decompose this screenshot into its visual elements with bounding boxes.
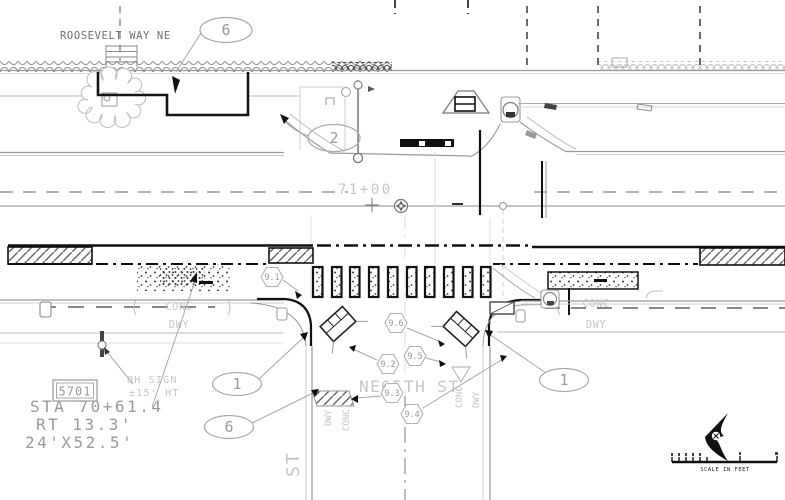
pole-flag-icon bbox=[368, 86, 375, 92]
scale-bar-label: SCALE IN FEET bbox=[700, 467, 750, 473]
north-curb-bus-zone bbox=[330, 153, 470, 156]
ramp-left-conc-label: CONC bbox=[342, 409, 352, 431]
sta-note-line2: RT 13.3' bbox=[36, 415, 133, 434]
keynote-9-2-arrow-icon bbox=[349, 345, 356, 352]
keynote-9-6-label: 9.6 bbox=[388, 319, 403, 329]
conc-label-left: CONC bbox=[165, 301, 192, 313]
hatch-area-3 bbox=[700, 248, 785, 265]
keynote-9-3-label: 9.3 bbox=[384, 389, 399, 399]
curb-ramp-left bbox=[313, 301, 367, 354]
concrete-panel-right bbox=[548, 272, 638, 289]
keynote-9-1-label: 9.1 bbox=[264, 273, 279, 283]
callout-2-label: 2 bbox=[329, 129, 338, 147]
keynote-9-3-leader bbox=[356, 396, 381, 398]
callouts: 6 2 1 6 1 bbox=[172, 18, 589, 439]
keynote-9-1-arrow-icon bbox=[295, 291, 302, 299]
conc-label-right: CONC bbox=[582, 298, 609, 310]
driveway-flare-5 bbox=[493, 268, 535, 298]
utility-box-2 bbox=[277, 308, 287, 320]
keynote-9-4-label: 9.4 bbox=[404, 410, 419, 420]
station-label: 71+00 bbox=[338, 182, 393, 198]
curb-stop-symbol bbox=[544, 103, 557, 110]
south-frontage-left bbox=[0, 300, 284, 357]
centerline-node bbox=[500, 203, 507, 210]
keynote-9-2-leader bbox=[353, 349, 377, 360]
keynote-9-6-leader bbox=[407, 328, 441, 342]
monument-symbol bbox=[395, 200, 408, 213]
callout-6-top-label: 6 bbox=[221, 21, 230, 39]
rotated-street-label: ST bbox=[283, 451, 304, 477]
oh-sign-label-1: OH SIGN bbox=[127, 375, 178, 386]
keynote-9-5-label: 9.5 bbox=[407, 352, 422, 362]
callout-1-right-arrow-icon bbox=[485, 330, 493, 339]
bus-bench bbox=[400, 139, 454, 147]
keynote-9-6-arrow-icon bbox=[438, 340, 445, 347]
apron-edge-4 bbox=[646, 291, 663, 298]
keynote-9-2-label: 9.2 bbox=[380, 360, 395, 370]
tree-symbol bbox=[78, 67, 146, 128]
ramp-landing-right bbox=[490, 302, 514, 314]
curb-ramp-right bbox=[431, 306, 485, 359]
apron-edge-2 bbox=[228, 300, 230, 315]
concrete-panel-left-dense bbox=[160, 268, 205, 286]
callout-1-left-leader bbox=[259, 336, 305, 379]
sta-note-line1: STA 70+61.4 bbox=[30, 397, 163, 416]
cross-street-suffix: TH ST bbox=[404, 377, 460, 396]
driveway-hatch-box bbox=[312, 391, 354, 406]
station-tick bbox=[365, 198, 379, 212]
crosswalk bbox=[313, 267, 491, 297]
utility-box-3 bbox=[516, 310, 525, 322]
plan-sheet: ROOSEVELT WAY NE 71+00 NE 65 TH ST ST CO… bbox=[0, 0, 785, 500]
oh-sign-leader bbox=[108, 353, 133, 384]
driveway-flare-3 bbox=[520, 122, 565, 151]
scale-bar: SCALE IN FEET bbox=[671, 452, 778, 473]
signal-pole-box-2 bbox=[541, 290, 559, 308]
shelter-ramp bbox=[443, 91, 489, 113]
cross-street-prefix: NE bbox=[359, 377, 381, 396]
signal-pole-box bbox=[501, 97, 520, 122]
callout-6-top-arrow-icon bbox=[172, 76, 180, 94]
hatch-area-2 bbox=[269, 248, 313, 263]
callout-6-bottom-label: 6 bbox=[224, 418, 233, 436]
street-label-roosevelt: ROOSEVELT WAY NE bbox=[60, 30, 171, 42]
keynote-9-1-leader bbox=[283, 280, 298, 291]
titleblock: SCALE IN FEET bbox=[671, 413, 778, 473]
dwy-label-left: DWY bbox=[169, 319, 190, 331]
hatch-area-1 bbox=[8, 247, 92, 264]
driveway-tick-1 bbox=[525, 130, 537, 139]
dwy-label-right: DWY bbox=[586, 319, 607, 331]
ramp-right-dwy-label: DWY bbox=[472, 391, 482, 408]
north-arrow-icon bbox=[705, 413, 728, 461]
notes: 5701 OH SIGN ±15' HT STA 70+61.4 RT 13.3… bbox=[25, 272, 197, 452]
sta-note-line3: 24'X52.5' bbox=[25, 433, 134, 452]
driveway-flare-1 bbox=[283, 119, 330, 153]
keynote-9-4-arrow-icon bbox=[500, 355, 507, 362]
curb-return-left-bold bbox=[257, 299, 311, 346]
keynote-9-5-arrow-icon bbox=[439, 360, 446, 367]
keynote-9-5-leader bbox=[426, 358, 441, 362]
panel-bar-left bbox=[199, 281, 213, 284]
plan-drawing: ROOSEVELT WAY NE 71+00 NE 65 TH ST ST CO… bbox=[0, 0, 785, 500]
callout-1-right-label: 1 bbox=[559, 371, 568, 389]
curb-return-up bbox=[470, 124, 500, 157]
north-frontage bbox=[0, 0, 785, 150]
ramp-left-dwy-label: DWY bbox=[324, 409, 334, 426]
panel-bar-right bbox=[594, 279, 607, 282]
south-edge-strip bbox=[8, 246, 785, 298]
ramp-right-conc-label: CONC bbox=[455, 386, 465, 408]
callout-1-left-label: 1 bbox=[232, 375, 241, 393]
hedge-row-right bbox=[598, 61, 785, 71]
south-frontage-right bbox=[493, 264, 785, 332]
callout-1-right-leader bbox=[489, 334, 546, 373]
utility-box-1 bbox=[40, 302, 51, 317]
